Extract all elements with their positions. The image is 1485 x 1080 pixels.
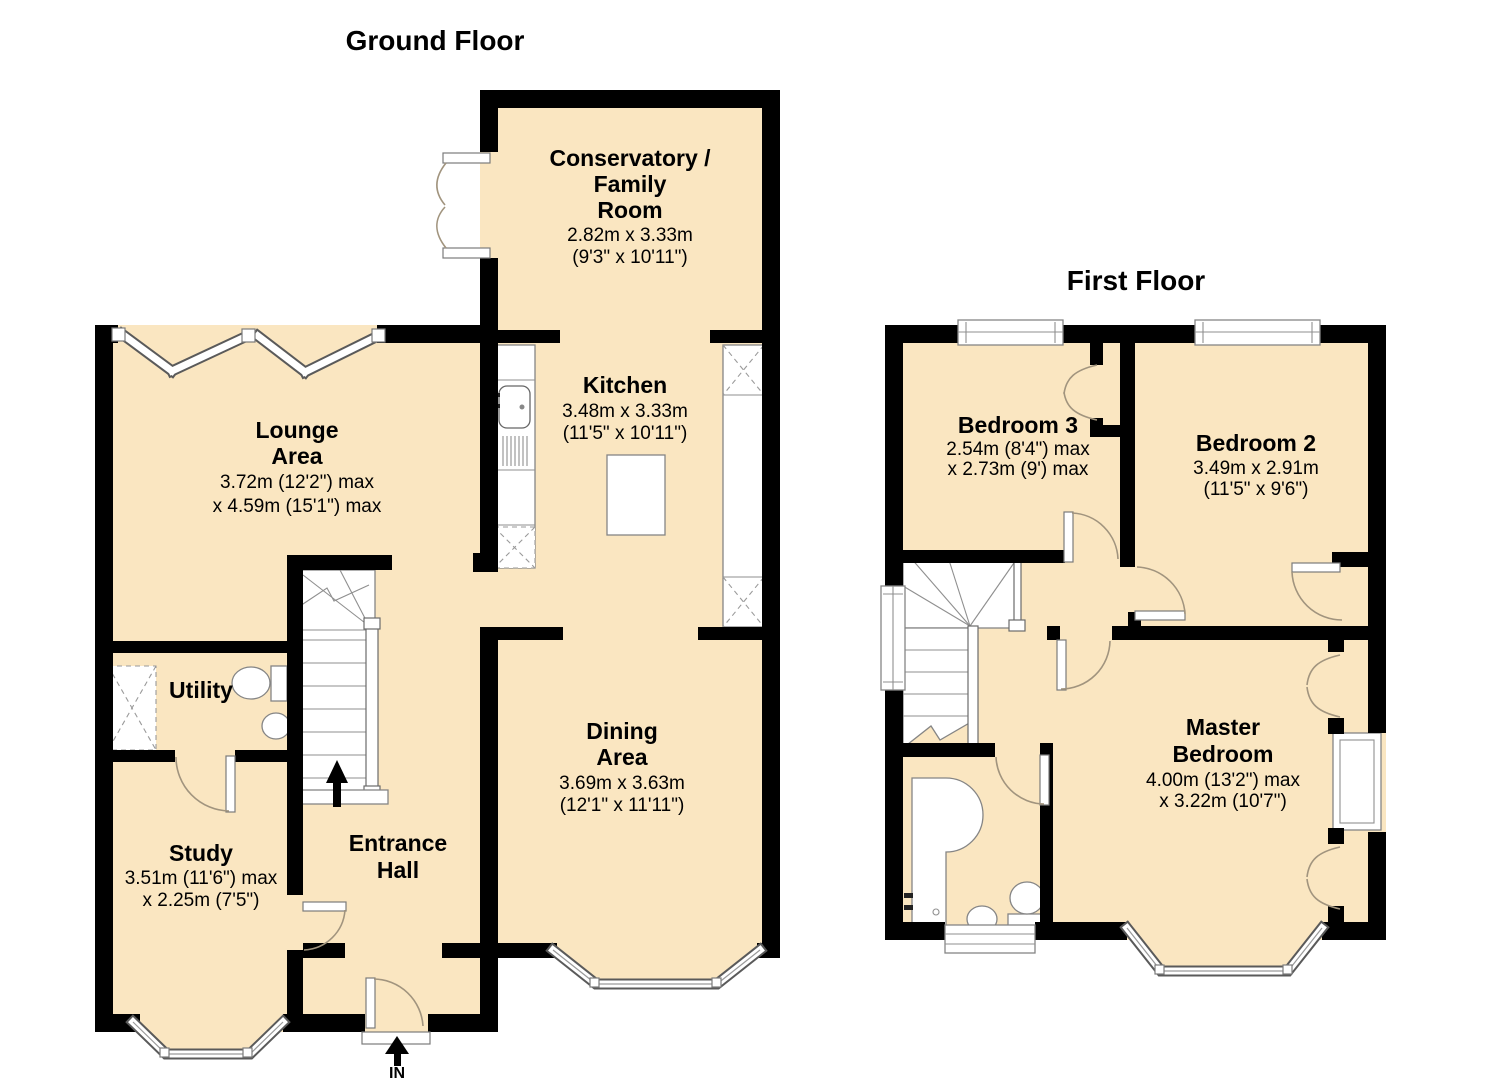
kitchen-island-icon xyxy=(607,455,665,535)
svg-text:3.49m x 2.91m: 3.49m x 2.91m xyxy=(1193,458,1319,479)
svg-text:4.00m (13'2") max: 4.00m (13'2") max xyxy=(1146,770,1300,791)
room-label-bedroom3: Bedroom 3 2.54m (8'4") max x 2.73m (9') … xyxy=(946,412,1090,480)
floorplan-drawing: Ground Floor Conservatory / Family Room … xyxy=(0,0,1485,1080)
bathroom-window-icon xyxy=(945,925,1035,953)
kitchen-units-right-icon xyxy=(723,345,764,627)
svg-text:2.54m (8'4") max: 2.54m (8'4") max xyxy=(946,439,1090,460)
svg-text:Family: Family xyxy=(594,171,667,197)
svg-text:Dining: Dining xyxy=(586,718,658,744)
ground-floor-plan: Ground Floor Conservatory / Family Room … xyxy=(95,25,780,1080)
svg-text:x 4.59m (15'1") max: x 4.59m (15'1") max xyxy=(213,496,382,517)
svg-text:Hall: Hall xyxy=(377,857,419,883)
utility-appliance-icon xyxy=(108,666,156,750)
svg-text:Lounge: Lounge xyxy=(255,417,338,443)
stairwell-window-icon xyxy=(881,586,905,690)
svg-text:x 2.25m (7'5"): x 2.25m (7'5") xyxy=(142,890,259,911)
svg-text:3.51m (11'6") max: 3.51m (11'6") max xyxy=(125,868,278,889)
svg-text:Room: Room xyxy=(597,197,662,223)
svg-text:Area: Area xyxy=(271,443,322,469)
bedroom2-window-icon xyxy=(1195,320,1320,345)
ground-stairs-icon xyxy=(300,570,388,807)
floorplan-page: Ground Floor Conservatory / Family Room … xyxy=(0,0,1485,1080)
landing-cupboard-icon xyxy=(1333,733,1381,830)
svg-text:Entrance: Entrance xyxy=(349,830,447,856)
svg-text:2.82m x 3.33m: 2.82m x 3.33m xyxy=(567,225,693,246)
svg-text:Study: Study xyxy=(169,840,233,866)
svg-text:Master: Master xyxy=(1186,714,1260,740)
svg-text:(11'5" x 10'11"): (11'5" x 10'11") xyxy=(563,423,688,444)
svg-text:Bedroom: Bedroom xyxy=(1173,741,1274,767)
svg-text:Kitchen: Kitchen xyxy=(583,372,667,398)
svg-text:Bedroom 3: Bedroom 3 xyxy=(958,412,1078,438)
svg-text:3.48m x 3.33m: 3.48m x 3.33m xyxy=(562,401,688,422)
first-floor-title: First Floor xyxy=(1067,265,1206,296)
svg-text:(11'5" x 9'6"): (11'5" x 9'6") xyxy=(1204,479,1309,500)
bedroom3-window-icon xyxy=(958,320,1063,345)
svg-text:(9'3" x 10'11"): (9'3" x 10'11") xyxy=(572,247,687,268)
svg-text:(12'1" x 11'11"): (12'1" x 11'11") xyxy=(560,795,685,816)
svg-text:Conservatory /: Conservatory / xyxy=(549,145,711,171)
svg-text:Area: Area xyxy=(596,744,647,770)
svg-text:x 3.22m (10'7"): x 3.22m (10'7") xyxy=(1159,791,1287,812)
first-floor-plan: First Floor Bedroom 3 2.54m (8'4") max x… xyxy=(881,265,1386,974)
room-label-bedroom2: Bedroom 2 3.49m x 2.91m (11'5" x 9'6") xyxy=(1193,430,1319,500)
svg-text:3.72m (12'2") max: 3.72m (12'2") max xyxy=(220,472,374,493)
svg-text:x 2.73m (9') max: x 2.73m (9') max xyxy=(948,459,1089,480)
utility-toilet-icon xyxy=(232,666,287,701)
ground-floor-title: Ground Floor xyxy=(346,25,525,56)
svg-text:3.69m x 3.63m: 3.69m x 3.63m xyxy=(559,773,685,794)
svg-text:Bedroom 2: Bedroom 2 xyxy=(1196,430,1316,456)
entry-in-label: IN xyxy=(389,1065,405,1080)
room-label-utility: Utility xyxy=(169,677,233,703)
